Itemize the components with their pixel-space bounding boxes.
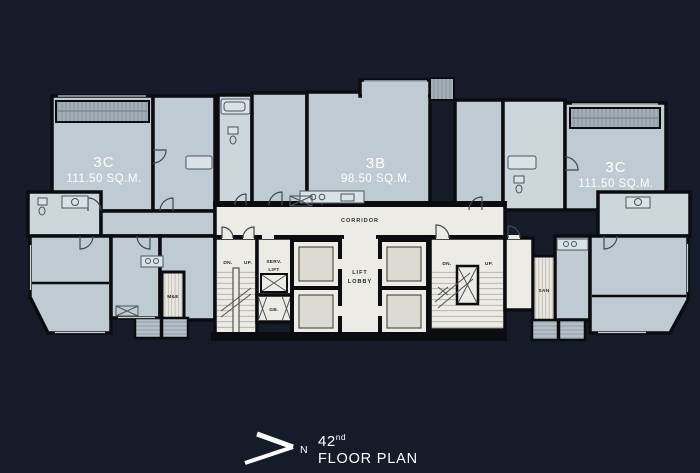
corridor-label: CORRIDOR — [341, 218, 379, 224]
unit-label: 3C — [605, 159, 626, 176]
lift-door — [336, 259, 343, 269]
room-hall — [101, 211, 215, 236]
core-foyer — [505, 238, 533, 310]
room-bedroom — [153, 96, 215, 211]
unit-3b: 3B 98.50 SQ.M. — [218, 78, 454, 205]
lift-car — [387, 295, 421, 328]
kitchen-counter — [557, 239, 588, 250]
ac-ledge — [135, 318, 161, 338]
floor-plan-label: FLOOR PLAN — [318, 451, 418, 467]
room-bedroom — [30, 236, 111, 333]
bathtub — [221, 99, 250, 114]
room-bathroom — [503, 100, 565, 210]
toilet — [514, 176, 524, 183]
core: CORRIDOR DN. UP. SERV. LIFT GB. LIFT LOB… — [162, 201, 555, 341]
lift-door — [336, 306, 343, 316]
unit-area-label: 111.50 SQ.M. — [578, 178, 653, 190]
door-opening — [243, 235, 254, 239]
lift-car — [299, 247, 333, 281]
kitchen-counter — [141, 256, 163, 267]
toilet — [38, 198, 47, 205]
toilet — [228, 127, 238, 134]
stair-up-label: UP. — [485, 261, 493, 267]
unit-label: 3B — [366, 155, 386, 172]
service-lift-label: SERV. — [266, 259, 281, 265]
lift-lobby — [342, 238, 378, 337]
door-opening — [262, 235, 274, 239]
unit-area-label: 111.50 SQ.M. — [66, 173, 141, 185]
lift-door — [377, 306, 384, 316]
floor-plan-stage: 3C 111.50 SQ.M. 3B 98.50 SQ.M. 3C 111.50… — [0, 0, 700, 473]
lift-lobby-label: LIFT — [352, 270, 368, 276]
unit-3c-left: 3C 111.50 SQ.M. — [28, 96, 215, 333]
gb-label: GB. — [269, 307, 278, 313]
service-lift-label2: LIFT — [268, 267, 279, 273]
unit-area-label: 98.50 SQ.M. — [341, 173, 411, 185]
lift-lobby-label2: LOBBY — [348, 279, 372, 285]
door-opening — [436, 235, 449, 239]
me-label: M&E — [167, 294, 179, 300]
stair-dn-label: DN. — [223, 260, 232, 266]
balcony — [430, 78, 454, 100]
bathtub — [186, 156, 212, 169]
stair-up-label: UP. — [244, 260, 252, 266]
unit-label: 3C — [93, 154, 114, 171]
floor-plan: 3C 111.50 SQ.M. 3B 98.50 SQ.M. 3C 111.50… — [0, 0, 700, 473]
room-living-join — [362, 90, 428, 98]
lift-car — [387, 247, 421, 281]
room-bedroom — [252, 93, 307, 205]
lift-car — [299, 295, 333, 328]
stair-dn-label: DN. — [442, 261, 451, 267]
san-label: SAN — [538, 288, 549, 294]
door-opening — [508, 235, 520, 239]
ac-ledge — [559, 320, 585, 340]
wall — [211, 332, 507, 341]
bathtub — [508, 156, 536, 169]
door-opening — [222, 235, 233, 239]
room-living — [307, 92, 430, 205]
room-bedroom — [590, 236, 688, 333]
north-label: N — [300, 444, 308, 456]
vanity — [62, 196, 88, 208]
door-opening — [344, 235, 376, 239]
ac-ledge — [532, 320, 558, 340]
lift-door — [377, 259, 384, 269]
ac-ledge — [162, 318, 188, 338]
room-bedroom — [455, 100, 503, 210]
